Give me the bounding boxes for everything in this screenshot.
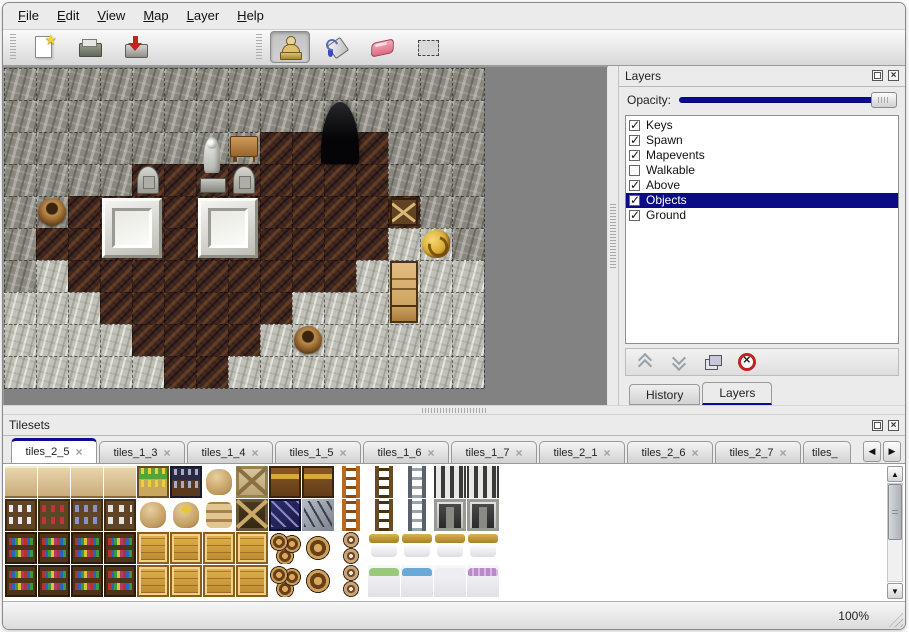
vertical-splitter[interactable]	[608, 66, 618, 405]
map-tile[interactable]	[356, 164, 388, 196]
map-tile[interactable]	[36, 228, 68, 260]
bucket-fill-button[interactable]	[316, 31, 356, 63]
map-tile[interactable]	[356, 196, 388, 228]
close-tab-icon[interactable]: ×	[252, 448, 259, 458]
map-tile[interactable]	[132, 292, 164, 324]
map-tile[interactable]	[4, 196, 36, 228]
map-tile[interactable]	[388, 100, 420, 132]
map-tile[interactable]	[4, 228, 36, 260]
map-tile[interactable]	[68, 132, 100, 164]
map-tile[interactable]	[420, 132, 452, 164]
tileset-tile-ladder-brown[interactable]	[368, 466, 400, 498]
tileset-tile-stone-doorway[interactable]	[467, 499, 499, 531]
map-tile[interactable]	[260, 324, 292, 356]
tileset-tab-label: tiles_	[812, 447, 838, 459]
map-tile[interactable]	[100, 132, 132, 164]
map-tile[interactable]	[196, 100, 228, 132]
tileset-tab-tiles_2_5[interactable]: tiles_2_5×	[11, 438, 97, 463]
tileset-tile-bookshelf[interactable]	[38, 565, 70, 597]
map-tile[interactable]	[100, 260, 132, 292]
layer-row-mapevents[interactable]: Mapevents	[626, 148, 898, 163]
tileset-tab-tiles_[interactable]: tiles_	[803, 441, 851, 463]
map-object-cave-entrance	[324, 100, 356, 164]
map-tile[interactable]	[228, 292, 260, 324]
map-tile[interactable]	[196, 292, 228, 324]
map-tile[interactable]	[164, 164, 196, 196]
layer-name: Ground	[646, 208, 686, 222]
lower-layer-button[interactable]	[666, 351, 692, 373]
tileset-tile-clay-pots[interactable]	[335, 532, 367, 564]
tileset-tile-bed-headboard[interactable]	[401, 532, 433, 564]
map-object-tomb-slab	[196, 196, 260, 260]
tileset-tile-gold-crate[interactable]	[170, 532, 202, 564]
map-tile[interactable]	[452, 100, 484, 132]
layer-row-ground[interactable]: Ground	[626, 208, 898, 223]
tileset-tile-fish-crate[interactable]	[170, 466, 202, 498]
tileset-tile-barrel-cluster[interactable]	[269, 532, 301, 564]
tileset-tile-stone-arch[interactable]	[467, 466, 499, 498]
tileset-tile-bed-white[interactable]	[434, 565, 466, 597]
tileset-tile-shelf-dishes[interactable]	[5, 499, 37, 531]
dock-tabs: HistoryLayers	[619, 380, 905, 405]
resize-grip[interactable]	[888, 612, 903, 627]
map-tile[interactable]	[356, 68, 388, 100]
map-tile[interactable]	[164, 132, 196, 164]
horizontal-splitter[interactable]	[3, 405, 905, 414]
tileset-tile-empty[interactable]	[500, 565, 532, 597]
map-tile[interactable]	[452, 260, 484, 292]
map-tile[interactable]	[132, 356, 164, 388]
close-tab-icon[interactable]: ×	[516, 448, 523, 458]
tab-scroll-buttons: ◀ ▶	[859, 441, 905, 463]
map-tile[interactable]	[68, 100, 100, 132]
tileset-tab-label: tiles_1_3	[113, 447, 157, 459]
tileset-tile-broken-blue-crate[interactable]	[269, 499, 301, 531]
map-tile[interactable]	[452, 228, 484, 260]
new-file-button[interactable]	[24, 31, 64, 63]
map-tile[interactable]	[324, 196, 356, 228]
map-tile[interactable]	[164, 68, 196, 100]
map-tile[interactable]	[324, 68, 356, 100]
tileset-tile-bookshelf[interactable]	[71, 532, 103, 564]
map-tile[interactable]	[292, 164, 324, 196]
map-tile[interactable]	[196, 68, 228, 100]
map-tile[interactable]	[356, 100, 388, 132]
close-tab-icon[interactable]: ×	[780, 448, 787, 458]
layer-visibility-checkbox[interactable]	[629, 135, 640, 146]
tileset-tile-bookshelf[interactable]	[38, 532, 70, 564]
undo-button[interactable]	[162, 31, 202, 63]
tileset-tab-label: tiles_2_7	[729, 447, 773, 459]
map-tile[interactable]	[68, 228, 100, 260]
tileset-tab-label: tiles_1_6	[377, 447, 421, 459]
open-file-button[interactable]	[70, 31, 110, 63]
layer-name: Above	[646, 178, 680, 192]
layer-visibility-checkbox[interactable]	[629, 165, 640, 176]
tileset-tile-ladder-orange[interactable]	[335, 499, 367, 531]
tileset-tile-bed-purple-blanket[interactable]	[467, 565, 499, 597]
menu-view[interactable]: View	[88, 5, 134, 26]
toolbar	[3, 29, 905, 66]
map-tile[interactable]	[292, 68, 324, 100]
tileset-tile-gold-crate[interactable]	[137, 532, 169, 564]
map-tile[interactable]	[132, 132, 164, 164]
map-tile[interactable]	[228, 260, 260, 292]
stamp-brush-icon	[277, 35, 303, 59]
eraser-button[interactable]	[362, 31, 402, 63]
tileset-tile-empty[interactable]	[500, 532, 532, 564]
opacity-slider-track	[679, 97, 893, 103]
scroll-tabs-left-icon[interactable]: ◀	[863, 441, 881, 462]
map-tile[interactable]	[324, 292, 356, 324]
map-tile[interactable]	[196, 356, 228, 388]
map-tile[interactable]	[388, 356, 420, 388]
tileset-tile-gold-crate[interactable]	[203, 565, 235, 597]
tileset-tile-bookshelf[interactable]	[5, 565, 37, 597]
close-panel-icon[interactable]: ×	[888, 420, 899, 431]
map-tile[interactable]	[164, 324, 196, 356]
layers-dock-title: Layers	[625, 69, 661, 83]
tileset-tile-clay-pots[interactable]	[335, 565, 367, 597]
map-tile[interactable]	[4, 324, 36, 356]
tileset-tile-sack-pile[interactable]	[203, 499, 235, 531]
grid-line	[4, 324, 484, 325]
tileset-tile-gold-crate[interactable]	[236, 532, 268, 564]
map-tile[interactable]	[228, 356, 260, 388]
map-tile[interactable]	[388, 164, 420, 196]
rect-select-icon	[415, 35, 441, 59]
map-tile[interactable]	[452, 68, 484, 100]
map-tile[interactable]	[132, 260, 164, 292]
map-tile[interactable]	[132, 324, 164, 356]
close-tab-icon[interactable]: ×	[692, 448, 699, 458]
scroll-down-icon[interactable]: ▼	[887, 583, 903, 599]
opacity-slider[interactable]	[679, 92, 897, 108]
rect-select-button[interactable]	[408, 31, 448, 63]
map-object-gold-ornament	[420, 228, 452, 260]
map-tile[interactable]	[260, 196, 292, 228]
grid-line	[4, 356, 484, 357]
menu-edit[interactable]: Edit	[48, 5, 88, 26]
map-tile[interactable]	[260, 260, 292, 292]
map-tile[interactable]	[100, 164, 132, 196]
map-tile[interactable]	[356, 356, 388, 388]
menu-layer[interactable]: Layer	[178, 5, 229, 26]
map-tile[interactable]	[164, 100, 196, 132]
tileset-tab-tiles_2_7[interactable]: tiles_2_7×	[715, 441, 801, 463]
map-tile[interactable]	[4, 292, 36, 324]
map-tile[interactable]	[100, 324, 132, 356]
tileset-content: ▲ ▼	[3, 463, 905, 601]
tileset-tab-tiles_2_6[interactable]: tiles_2_6×	[627, 441, 713, 463]
tileset-tile-planter-box[interactable]	[137, 466, 169, 498]
map-tile[interactable]	[260, 132, 292, 164]
map-tile[interactable]	[132, 100, 164, 132]
map-tile[interactable]	[4, 68, 36, 100]
map-tile[interactable]	[36, 100, 68, 132]
tileset-tab-tiles_1_6[interactable]: tiles_1_6×	[363, 441, 449, 463]
map-tile[interactable]	[356, 260, 388, 292]
scroll-tabs-right-icon[interactable]: ▶	[883, 441, 901, 462]
tileset-tile-sack[interactable]	[203, 466, 235, 498]
tileset-tile-bookshelf[interactable]	[104, 565, 136, 597]
tileset-tile-shelf-top[interactable]	[38, 466, 70, 498]
map-tile[interactable]	[36, 68, 68, 100]
close-tab-icon[interactable]: ×	[428, 448, 435, 458]
tileset-tab-tiles_1_3[interactable]: tiles_1_3×	[99, 441, 185, 463]
tileset-tile-ladder-brown[interactable]	[368, 499, 400, 531]
map-tile[interactable]	[100, 356, 132, 388]
tileset-tile-bookshelf[interactable]	[104, 532, 136, 564]
map-tile[interactable]	[100, 292, 132, 324]
menu-map[interactable]: Map	[134, 5, 177, 26]
layer-name: Spawn	[646, 133, 683, 147]
toolbar-handle[interactable]	[255, 34, 263, 60]
map-tile[interactable]	[356, 228, 388, 260]
map-tile[interactable]	[388, 324, 420, 356]
map-tile[interactable]	[260, 228, 292, 260]
map-tile[interactable]	[4, 100, 36, 132]
tileset-tile-gold-crate[interactable]	[137, 565, 169, 597]
tileset-tile-shelf-top[interactable]	[104, 466, 136, 498]
layer-row-walkable[interactable]: Walkable	[626, 163, 898, 178]
duplicate-layer-button[interactable]	[700, 351, 726, 373]
map-tile[interactable]	[164, 228, 196, 260]
map-tile[interactable]	[420, 164, 452, 196]
tileset-tile-bed-headboard[interactable]	[368, 532, 400, 564]
map-tile[interactable]	[36, 164, 68, 196]
map-tile[interactable]	[260, 356, 292, 388]
layer-visibility-checkbox[interactable]	[629, 150, 640, 161]
map-tile[interactable]	[292, 292, 324, 324]
stamp-brush-button[interactable]	[270, 31, 310, 63]
map-tile[interactable]	[196, 324, 228, 356]
map-tile[interactable]	[420, 260, 452, 292]
map-tile[interactable]	[68, 68, 100, 100]
layer-row-keys[interactable]: Keys	[626, 118, 898, 133]
float-panel-icon[interactable]	[872, 70, 883, 81]
tileset-tile-wooden-chest[interactable]	[269, 466, 301, 498]
map-tile[interactable]	[356, 292, 388, 324]
map-tile[interactable]	[228, 68, 260, 100]
map-tile[interactable]	[452, 196, 484, 228]
map-tile[interactable]	[4, 164, 36, 196]
menu-help[interactable]: Help	[228, 5, 273, 26]
map-tile[interactable]	[420, 292, 452, 324]
map-tile[interactable]	[68, 292, 100, 324]
layers-dock: Layers × Opacity: KeysSpawnMapeventsWalk…	[618, 66, 905, 405]
map-tile[interactable]	[36, 356, 68, 388]
map-tile[interactable]	[36, 132, 68, 164]
tileset-tab-tiles_2_1[interactable]: tiles_2_1×	[539, 441, 625, 463]
float-panel-icon[interactable]	[872, 420, 883, 431]
redo-button[interactable]	[208, 31, 248, 63]
map-tile[interactable]	[420, 100, 452, 132]
map-tile[interactable]	[356, 324, 388, 356]
tileset-tile-shelf-top[interactable]	[71, 466, 103, 498]
tileset-tile-crate-crossed-dark[interactable]	[236, 499, 268, 531]
map-tile[interactable]	[420, 68, 452, 100]
layer-row-spawn[interactable]: Spawn	[626, 133, 898, 148]
layer-row-objects[interactable]: Objects	[626, 193, 898, 208]
map-tile[interactable]	[388, 132, 420, 164]
layer-row-above[interactable]: Above	[626, 178, 898, 193]
tileset-tile-empty[interactable]	[500, 466, 532, 498]
map-tile[interactable]	[164, 196, 196, 228]
map-tile[interactable]	[292, 132, 324, 164]
map-tile[interactable]	[324, 260, 356, 292]
layers-dock-titlebar: Layers ×	[619, 66, 905, 87]
tab-history[interactable]: History	[629, 384, 700, 405]
new-file-icon	[31, 35, 57, 59]
map-tile[interactable]	[260, 100, 292, 132]
close-panel-icon[interactable]: ×	[888, 70, 899, 81]
map-tile[interactable]	[196, 260, 228, 292]
grid-line	[4, 388, 484, 389]
redo-icon	[215, 35, 241, 59]
tileset-tile-barrel[interactable]	[302, 532, 334, 564]
map-tile[interactable]	[452, 164, 484, 196]
map-tile[interactable]	[356, 132, 388, 164]
tileset-tile-shelf-blue-jars[interactable]	[71, 499, 103, 531]
map-tile[interactable]	[388, 68, 420, 100]
map-tile[interactable]	[4, 132, 36, 164]
tab-layers[interactable]: Layers	[702, 382, 772, 405]
tileset-tile-shelf-red-bottles[interactable]	[38, 499, 70, 531]
tileset-tile-crate-crossed-light[interactable]	[236, 466, 268, 498]
map-tile[interactable]	[4, 260, 36, 292]
tileset-tile-ladder-gray[interactable]	[401, 499, 433, 531]
tileset-tab-tiles_1_5[interactable]: tiles_1_5×	[275, 441, 361, 463]
tileset-tile-wooden-chest[interactable]	[302, 466, 334, 498]
tileset-tile-gold-crate[interactable]	[236, 565, 268, 597]
map-tile[interactable]	[292, 228, 324, 260]
splitter-grip-icon	[422, 408, 486, 413]
tileset-tile-empty[interactable]	[500, 499, 532, 531]
tileset-tile-ladder-gray[interactable]	[401, 466, 433, 498]
map-tile[interactable]	[260, 292, 292, 324]
map-object-basket	[292, 324, 324, 356]
map-tile[interactable]	[388, 228, 420, 260]
tileset-tile-barrel-cluster[interactable]	[269, 565, 301, 597]
map-tile[interactable]	[324, 324, 356, 356]
layer-visibility-checkbox[interactable]	[629, 210, 640, 221]
map-tile[interactable]	[260, 68, 292, 100]
map-tile[interactable]	[452, 292, 484, 324]
tileset-tile-bed-green-blanket[interactable]	[368, 565, 400, 597]
map-tile[interactable]	[292, 356, 324, 388]
layer-visibility-checkbox[interactable]	[629, 195, 640, 206]
tileset-tile-shelf-top[interactable]	[5, 466, 37, 498]
map-tile[interactable]	[292, 260, 324, 292]
tileset-tile-bed-blue-blanket[interactable]	[401, 565, 433, 597]
map-tile[interactable]	[324, 356, 356, 388]
tileset-tab-label: tiles_2_5	[25, 446, 69, 458]
close-tab-icon[interactable]: ×	[76, 447, 83, 457]
tileset-tile-gold-crate[interactable]	[203, 532, 235, 564]
layer-visibility-checkbox[interactable]	[629, 180, 640, 191]
tileset-tile-sack[interactable]	[137, 499, 169, 531]
map-tile[interactable]	[4, 356, 36, 388]
tileset-tile-metal-scrap[interactable]	[302, 499, 334, 531]
map-tile[interactable]	[260, 164, 292, 196]
map-tile[interactable]	[68, 260, 100, 292]
map-tile[interactable]	[228, 324, 260, 356]
map-tile[interactable]	[452, 324, 484, 356]
close-tab-icon[interactable]: ×	[340, 448, 347, 458]
map-tile[interactable]	[452, 132, 484, 164]
map-tile[interactable]	[68, 356, 100, 388]
map-tile[interactable]	[164, 356, 196, 388]
map-tile[interactable]	[68, 324, 100, 356]
zoom-level: 100%	[838, 609, 869, 623]
tileset-scrollbar[interactable]: ▲ ▼	[887, 466, 903, 599]
layer-name: Mapevents	[646, 148, 705, 162]
map-tile[interactable]	[292, 100, 324, 132]
map-tile[interactable]	[164, 260, 196, 292]
toolbar-handle[interactable]	[9, 34, 17, 60]
map-tile[interactable]	[100, 68, 132, 100]
tileset-tile-bed-headboard[interactable]	[467, 532, 499, 564]
map-tile[interactable]	[324, 228, 356, 260]
map-viewport[interactable]	[3, 66, 608, 405]
map-canvas[interactable]	[4, 68, 484, 388]
tileset-tile-open-gold-sack[interactable]	[170, 499, 202, 531]
close-tab-icon[interactable]: ×	[604, 448, 611, 458]
close-tab-icon[interactable]: ×	[164, 448, 171, 458]
tilesets-dock: Tilesets × tiles_2_5×tiles_1_3×tiles_1_4…	[3, 414, 905, 601]
tileset-tile-ladder-orange[interactable]	[335, 466, 367, 498]
map-tile[interactable]	[36, 292, 68, 324]
scroll-up-icon[interactable]: ▲	[887, 466, 903, 482]
save-file-button[interactable]	[116, 31, 156, 63]
tileset-tile-bed-headboard[interactable]	[434, 532, 466, 564]
raise-layer-button[interactable]	[632, 351, 658, 373]
map-tile[interactable]	[292, 196, 324, 228]
tileset-tile-barrel[interactable]	[302, 565, 334, 597]
scrollbar-thumb[interactable]	[888, 484, 902, 540]
tileset-tab-tiles_1_7[interactable]: tiles_1_7×	[451, 441, 537, 463]
map-tile[interactable]	[36, 324, 68, 356]
tileset-tab-label: tiles_1_7	[465, 447, 509, 459]
map-tile[interactable]	[420, 196, 452, 228]
opacity-slider-handle[interactable]	[871, 92, 897, 108]
tileset-tile-stone-doorway[interactable]	[434, 499, 466, 531]
scrollbar-track[interactable]	[887, 483, 903, 582]
map-tile[interactable]	[164, 292, 196, 324]
tileset-tile-bookshelf[interactable]	[5, 532, 37, 564]
map-tile[interactable]	[420, 356, 452, 388]
map-tile[interactable]	[100, 100, 132, 132]
map-tile[interactable]	[228, 100, 260, 132]
tileset-tab-bar: tiles_2_5×tiles_1_3×tiles_1_4×tiles_1_5×…	[3, 436, 905, 463]
map-tile[interactable]	[36, 260, 68, 292]
delete-layer-button[interactable]	[734, 351, 760, 373]
layer-visibility-checkbox[interactable]	[629, 120, 640, 131]
map-tile[interactable]	[420, 324, 452, 356]
map-tile[interactable]	[68, 164, 100, 196]
tileset-tab-tiles_1_4[interactable]: tiles_1_4×	[187, 441, 273, 463]
tileset-tile-stone-arch[interactable]	[434, 466, 466, 498]
tileset-tile-gold-crate[interactable]	[170, 565, 202, 597]
tileset-tile-bookshelf[interactable]	[71, 565, 103, 597]
map-tile[interactable]	[132, 68, 164, 100]
menu-file[interactable]: File	[9, 5, 48, 26]
map-tile[interactable]	[452, 356, 484, 388]
map-tile[interactable]	[324, 164, 356, 196]
map-tile[interactable]	[68, 196, 100, 228]
tileset-tile-shelf-white-jars[interactable]	[104, 499, 136, 531]
